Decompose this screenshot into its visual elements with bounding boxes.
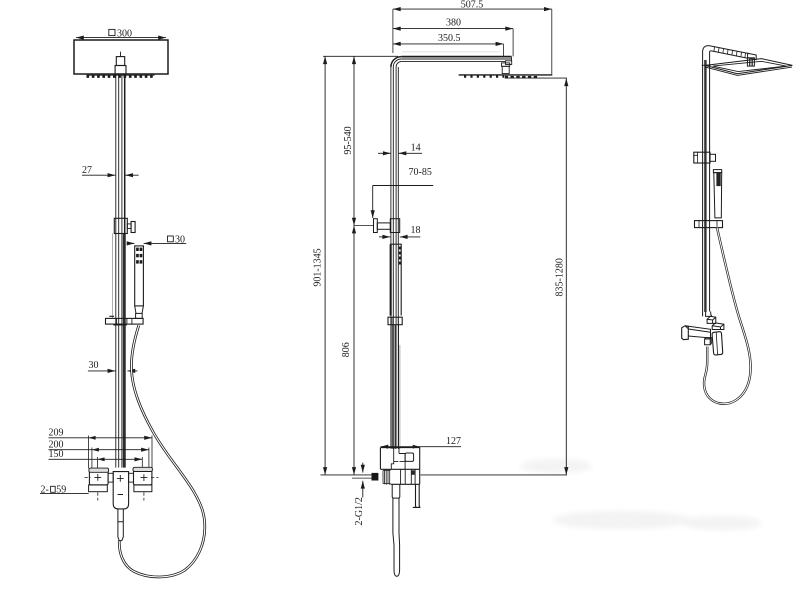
svg-text:2-G1/2: 2-G1/2 [354, 497, 365, 525]
svg-text:18: 18 [411, 225, 421, 236]
svg-text:70-85: 70-85 [409, 167, 432, 178]
svg-text:30: 30 [89, 360, 99, 371]
svg-text:835-1280: 835-1280 [554, 258, 565, 296]
svg-text:127: 127 [446, 436, 461, 447]
svg-text:901-1345: 901-1345 [313, 248, 324, 286]
svg-text:350.5: 350.5 [438, 33, 461, 44]
svg-text:14: 14 [411, 143, 421, 154]
svg-text:150: 150 [49, 449, 64, 460]
svg-text:806: 806 [341, 342, 352, 357]
svg-text:95-540: 95-540 [343, 126, 354, 154]
svg-text:380: 380 [446, 17, 461, 28]
svg-text:27: 27 [82, 165, 92, 176]
svg-text:209: 209 [49, 428, 64, 439]
